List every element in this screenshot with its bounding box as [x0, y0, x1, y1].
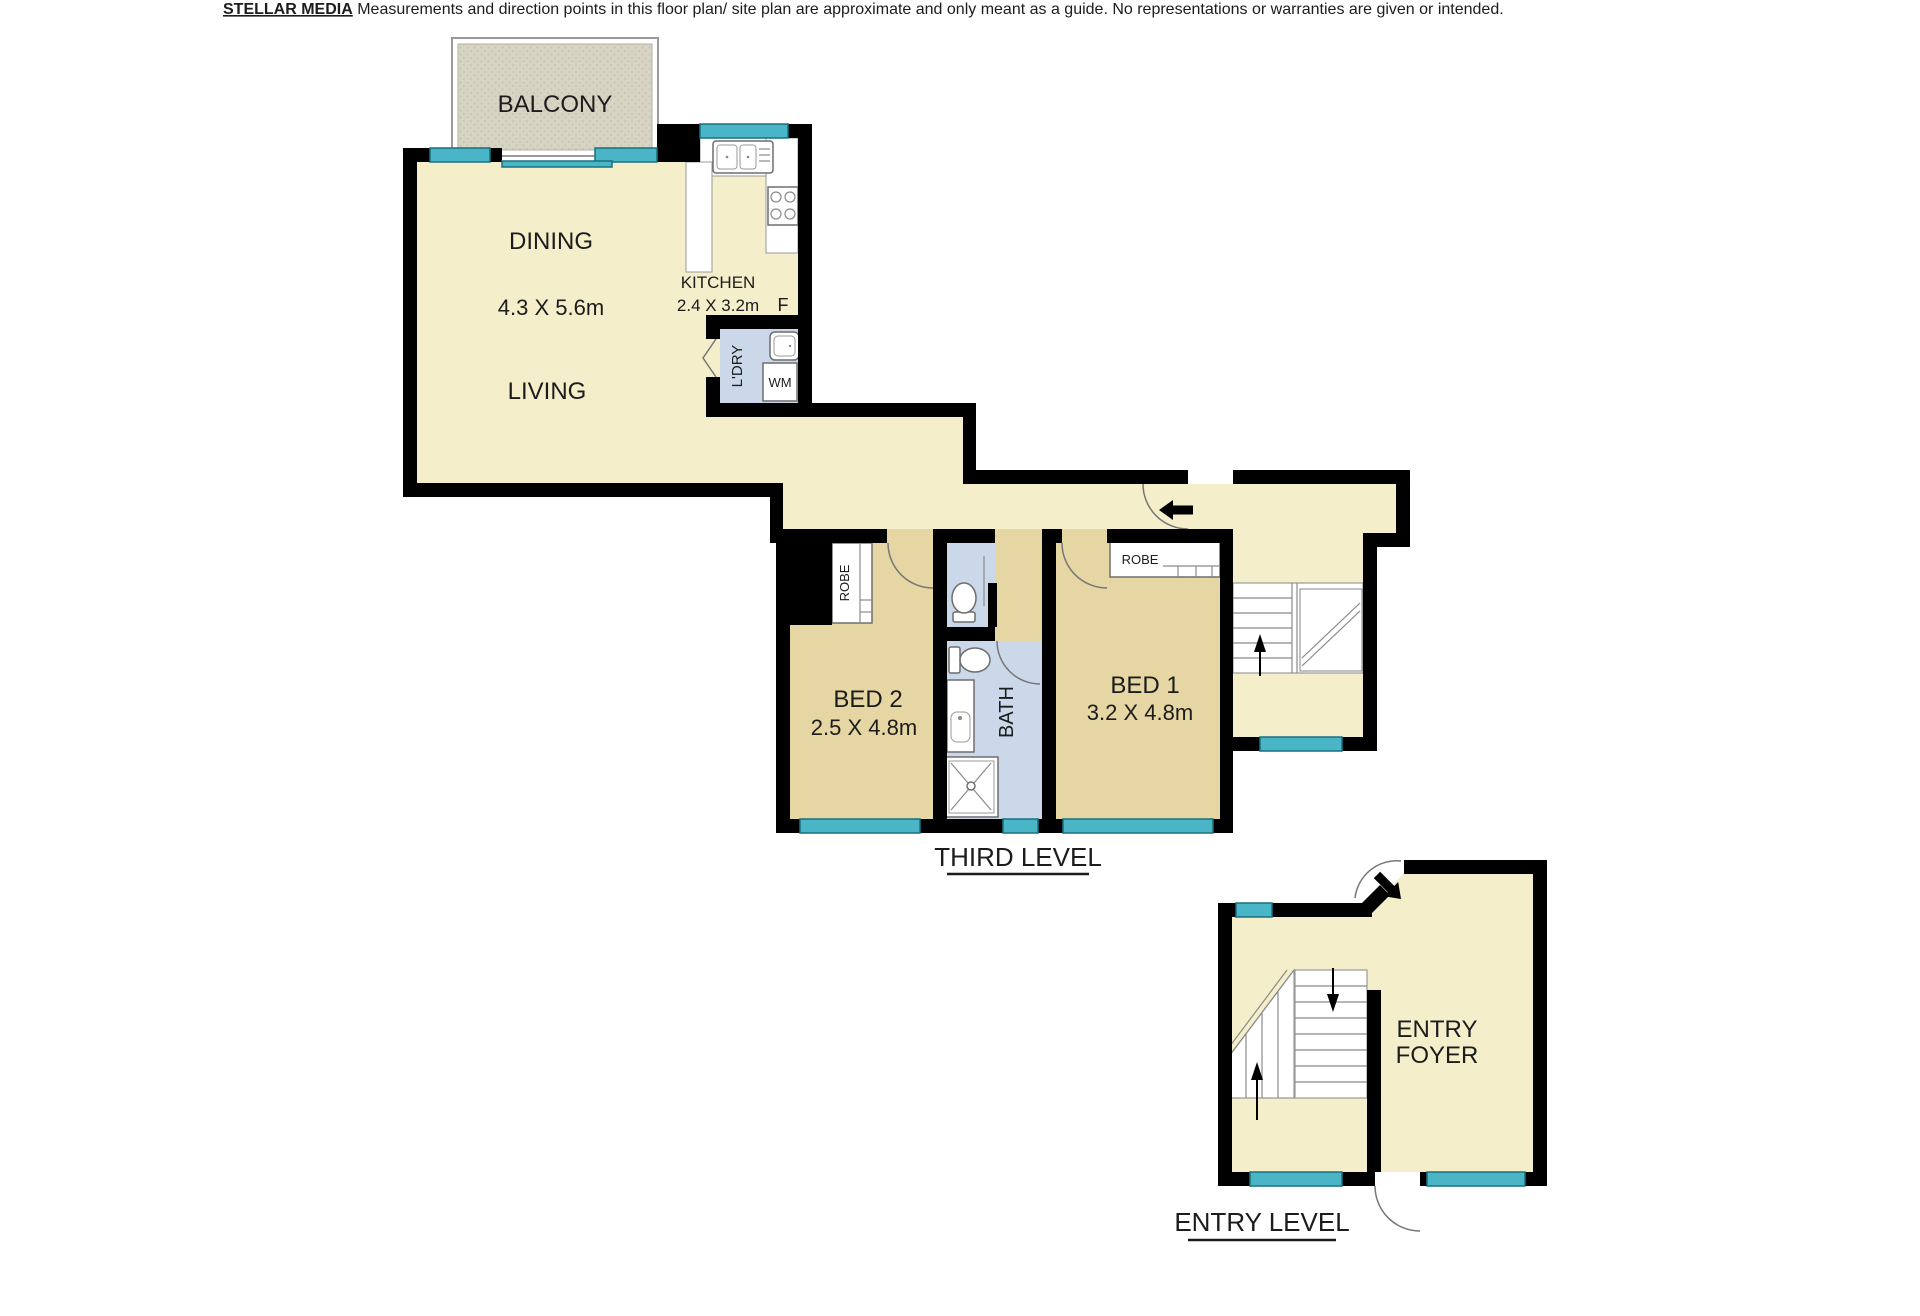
window: [595, 148, 657, 162]
disclaimer-body: Measurements and direction points in thi…: [353, 1, 1504, 18]
balcony: BALCONY: [452, 38, 658, 156]
floorplan-drawing: STELLAR MEDIA Measurements and direction…: [0, 0, 1920, 1316]
third-level-caption: THIRD LEVEL: [934, 842, 1102, 872]
bed2-dims: 2.5 X 4.8m: [811, 715, 917, 740]
window: [1003, 819, 1038, 833]
fridge-label: F: [778, 295, 789, 315]
robe-bed2-icon: ROBE: [832, 543, 872, 623]
disclaimer-text: STELLAR MEDIA Measurements and direction…: [223, 1, 1504, 18]
bath-vestibule-floor: [995, 529, 1042, 641]
bed2-label: BED 2: [833, 686, 902, 713]
entry-level-caption: ENTRY LEVEL: [1174, 1207, 1349, 1237]
window: [1427, 1172, 1525, 1186]
entry-foyer-label-line1: ENTRY: [1397, 1016, 1478, 1043]
window: [700, 124, 788, 138]
window: [1063, 819, 1213, 833]
robe-bed1-icon: ROBE: [1110, 540, 1220, 577]
bed2-robe-label: ROBE: [837, 564, 852, 601]
bath-label: BATH: [996, 686, 1018, 738]
sliding-door-leaf: [502, 161, 612, 167]
bed1-dims: 3.2 X 4.8m: [1087, 700, 1193, 725]
foyer-bottom-door-arc: [1375, 1186, 1420, 1231]
toilet-wc-icon: [952, 583, 976, 622]
living-dims: 4.3 X 5.6m: [498, 295, 604, 320]
vanity-basin-icon: [947, 680, 974, 752]
window: [1250, 1172, 1342, 1186]
kitchen-dims: 2.4 X 3.2m: [677, 296, 759, 315]
living-label: LIVING: [508, 378, 587, 405]
window: [1236, 903, 1272, 917]
laundry-tub-icon: [770, 332, 799, 360]
window: [1260, 737, 1342, 751]
toilet-bath-icon: [949, 647, 990, 673]
disclaimer-brand: STELLAR MEDIA: [223, 1, 353, 18]
window: [800, 819, 920, 833]
third-level-plan: BALCONY: [403, 38, 1410, 874]
cooktop-icon: [768, 187, 798, 225]
entry-level-plan: ENTRY FOYER ENTRY LEVEL: [1174, 860, 1547, 1240]
bed1-label: BED 1: [1110, 672, 1179, 699]
dining-label: DINING: [509, 228, 593, 255]
kitchen-bench-left: [686, 162, 712, 272]
bed1-door-gap: [1062, 529, 1107, 545]
kitchen-label: KITCHEN: [681, 273, 756, 292]
bed2-door-gap: [887, 529, 933, 545]
washing-machine-label: WM: [768, 375, 791, 390]
living-dining-floor: [417, 162, 706, 483]
kitchen-sink-icon: [713, 141, 773, 173]
washing-machine-icon: WM: [763, 363, 797, 401]
floorplan-page: STELLAR MEDIA Measurements and direction…: [0, 0, 1920, 1316]
balcony-label: BALCONY: [498, 91, 613, 118]
laundry-label: L'DRY: [729, 345, 746, 388]
shower-icon: [945, 757, 998, 817]
entry-foyer-label-line2: FOYER: [1396, 1042, 1479, 1069]
window: [430, 148, 490, 162]
bed1-robe-label: ROBE: [1122, 552, 1159, 567]
stairs-third-level: [1233, 583, 1363, 676]
